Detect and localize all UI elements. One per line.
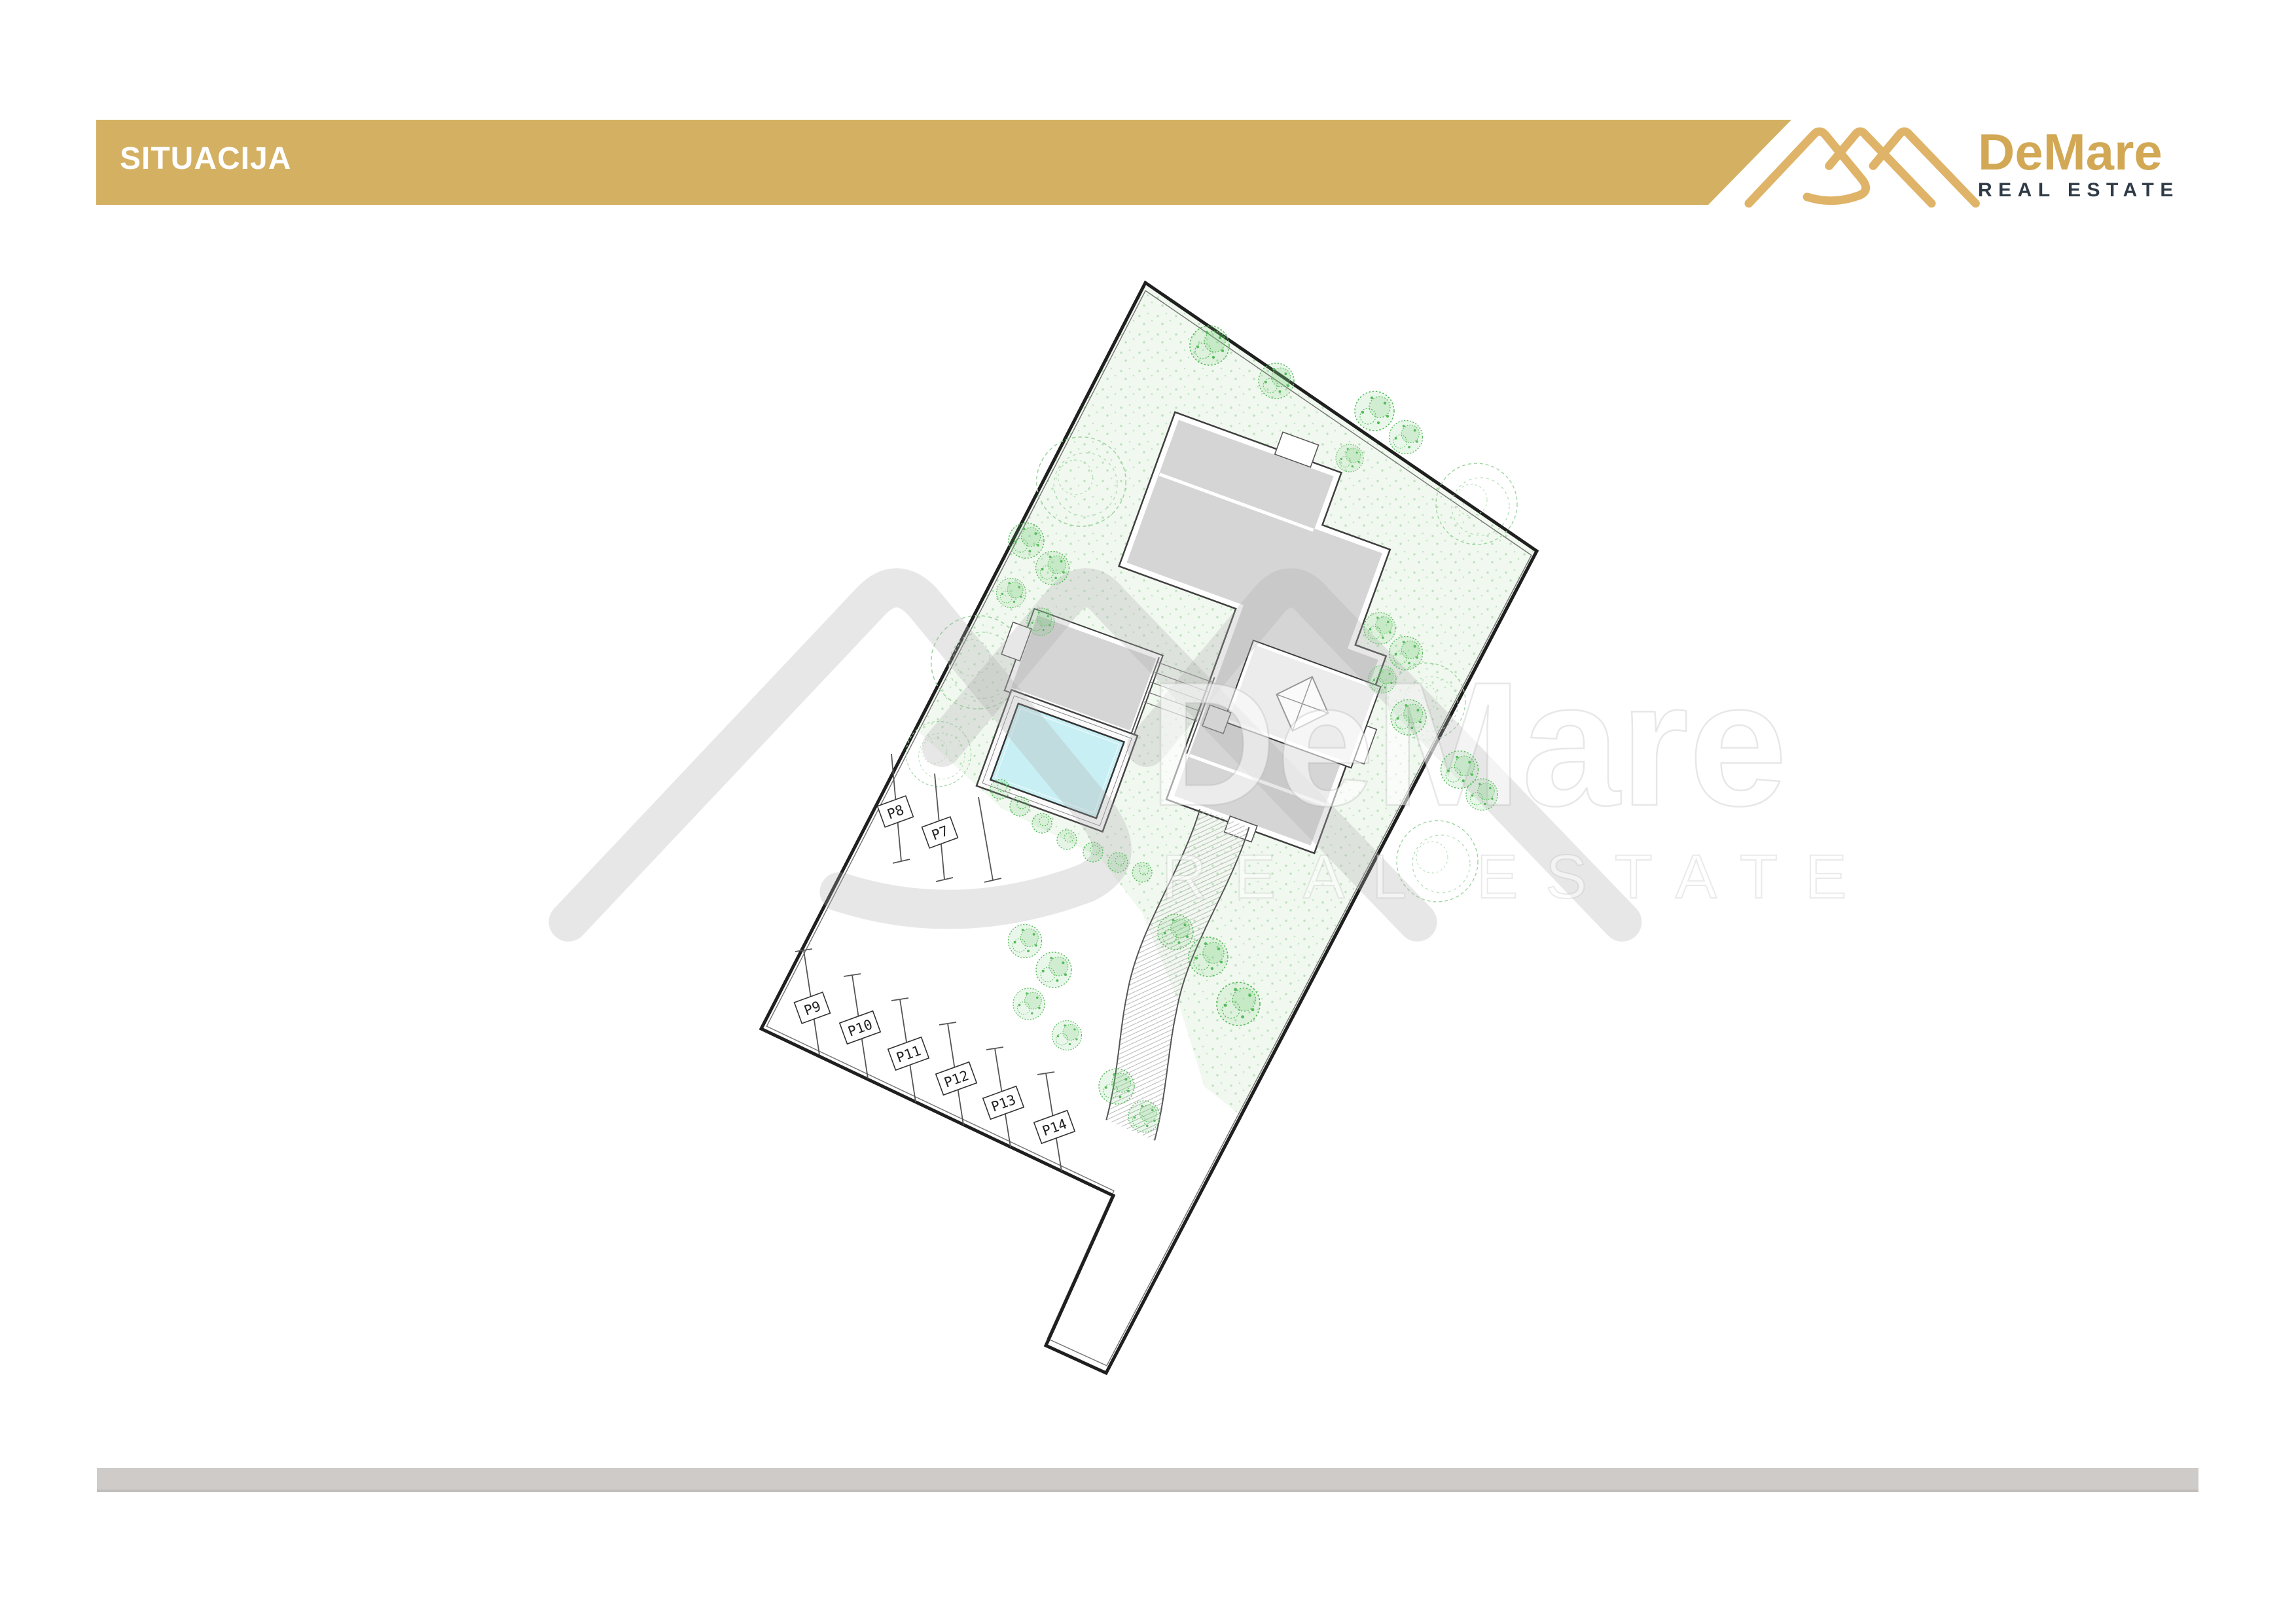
tree-icon [1013,988,1045,1020]
tree-icon [1259,363,1294,399]
parking-stall-lines-lower [795,949,1062,1171]
parking-space-label: P10 [840,1011,880,1044]
watermark-name: DeMare [1149,646,1787,843]
tree-icon [1336,444,1363,472]
site-plan-drawing: DeMare REAL ESTATE [0,0,2296,1623]
header-bar: SITUACIJA [96,120,1791,205]
tree-icon [1036,552,1069,585]
tree-icon [1390,637,1423,670]
parking-space-label: P9 [795,992,831,1024]
parking-labels: P8 P7 P9 P10 P11 P12 [795,796,1075,1143]
parking-space-label: P12 [936,1062,977,1095]
watermark: DeMare REAL ESTATE [568,588,1874,922]
parking-space-label: P11 [888,1037,929,1070]
shrub-icon [1010,796,1030,816]
tree-icon [997,579,1026,608]
logo-name: DeMare [1978,131,2253,173]
tree-icon [1009,523,1044,558]
sheet-background: DeMare REAL ESTATE [0,0,2296,1623]
shrub-icon [1083,842,1103,862]
tree-icon [1189,937,1228,976]
tree-icon [1052,1021,1082,1050]
tree-icon [1364,613,1395,644]
tree-icon [1158,914,1193,950]
shrub-icon [1057,830,1077,849]
tree-icon [1128,1101,1160,1132]
page-title: SITUACIJA [96,141,291,177]
parking-space-label: P14 [1034,1111,1075,1143]
parking-space-label: P7 [922,817,958,848]
tree-icon [1099,1069,1134,1104]
tree-icon [1217,982,1260,1026]
shrub-icon [1032,813,1052,833]
footer-bar [97,1468,2198,1492]
demare-logo-text: DeMare REAL ESTATE [1978,131,2253,202]
tree-icon [1369,666,1396,693]
tree-icon [1355,391,1394,431]
tree-icon [1009,925,1042,958]
tree-icon [1027,608,1054,635]
tree-icon [1190,326,1229,365]
watermark-subtitle: REAL ESTATE [1162,842,1874,912]
shrub-icon [1108,853,1128,872]
shrub-icon [1132,863,1152,882]
tree-icon [1390,421,1423,454]
logo-subtitle: REAL ESTATE [1978,179,2253,202]
demare-logo-icon [1741,122,1990,213]
parking-space-label: P13 [983,1086,1024,1119]
tree-icon [1036,952,1071,988]
tree-icon [1466,779,1498,810]
shrub-icon [990,779,1010,799]
tree-icon [1391,700,1426,735]
